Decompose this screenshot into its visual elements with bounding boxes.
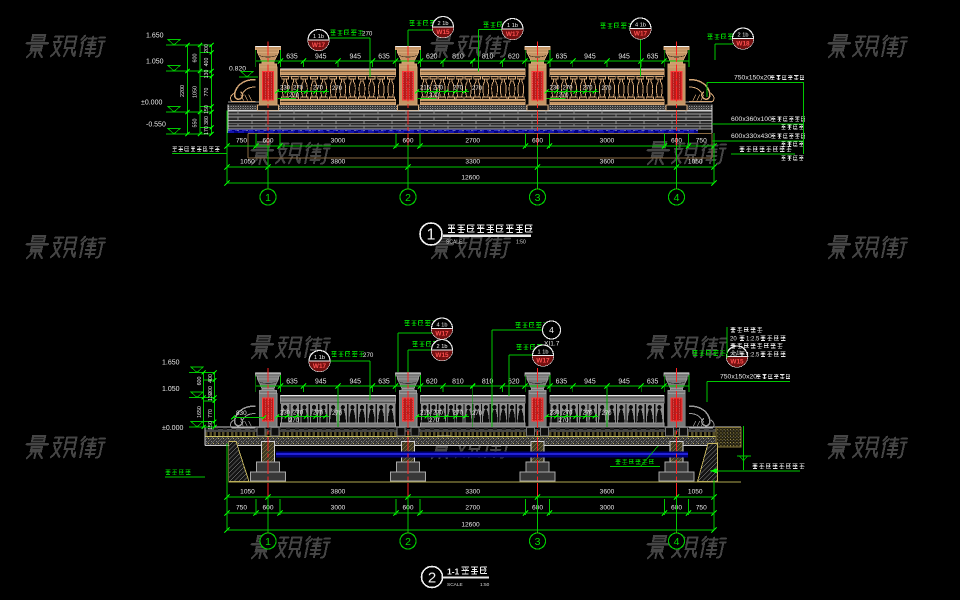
svg-text:270: 270 bbox=[429, 418, 440, 424]
svg-text:635: 635 bbox=[378, 379, 390, 386]
svg-text:810: 810 bbox=[452, 379, 464, 386]
svg-text:150: 150 bbox=[204, 105, 210, 114]
svg-text:2: 2 bbox=[428, 570, 436, 587]
svg-text:W18: W18 bbox=[736, 41, 750, 48]
svg-text:270: 270 bbox=[293, 86, 304, 92]
svg-text:1050: 1050 bbox=[688, 489, 703, 496]
svg-text:270: 270 bbox=[362, 31, 373, 38]
svg-text:3600: 3600 bbox=[600, 159, 615, 166]
svg-text:945: 945 bbox=[315, 54, 327, 61]
svg-text:600: 600 bbox=[402, 138, 413, 145]
svg-text:270: 270 bbox=[601, 411, 612, 417]
svg-text:270: 270 bbox=[313, 411, 324, 417]
svg-text:600x330x430: 600x330x430 bbox=[731, 133, 772, 140]
svg-text:270: 270 bbox=[332, 411, 343, 417]
svg-text:1 1b: 1 1b bbox=[314, 355, 325, 361]
svg-text:SCALE: SCALE bbox=[446, 240, 463, 246]
svg-text:600: 600 bbox=[262, 138, 273, 145]
svg-text:600: 600 bbox=[532, 138, 543, 145]
svg-text:620: 620 bbox=[426, 54, 438, 61]
svg-text:2 1b: 2 1b bbox=[438, 21, 449, 27]
svg-text:3800: 3800 bbox=[331, 489, 346, 496]
svg-text:2200: 2200 bbox=[180, 85, 186, 97]
svg-text:W17: W17 bbox=[312, 42, 326, 49]
svg-text:635: 635 bbox=[556, 379, 568, 386]
svg-text:945: 945 bbox=[349, 54, 361, 61]
svg-text:270: 270 bbox=[472, 86, 483, 92]
svg-text:270: 270 bbox=[582, 86, 593, 92]
svg-text:270: 270 bbox=[433, 86, 444, 92]
svg-text:1: 1 bbox=[265, 536, 271, 548]
svg-text:1:2.5: 1:2.5 bbox=[746, 337, 760, 343]
svg-text:3000: 3000 bbox=[331, 505, 346, 512]
svg-text:200: 200 bbox=[204, 44, 210, 53]
svg-text:230: 230 bbox=[280, 86, 291, 92]
svg-text:W17: W17 bbox=[506, 31, 520, 38]
svg-text:1.650: 1.650 bbox=[162, 360, 180, 367]
svg-text:270: 270 bbox=[472, 411, 483, 417]
svg-text:270: 270 bbox=[363, 352, 374, 359]
svg-text:1 1b: 1 1b bbox=[313, 34, 324, 40]
svg-text:2 1b: 2 1b bbox=[437, 344, 448, 350]
svg-text:4 1b: 4 1b bbox=[635, 22, 646, 28]
svg-text:20: 20 bbox=[730, 337, 737, 343]
svg-text:600: 600 bbox=[671, 138, 682, 145]
svg-text:635: 635 bbox=[647, 379, 659, 386]
svg-text:150: 150 bbox=[208, 421, 214, 430]
svg-text:620: 620 bbox=[426, 379, 438, 386]
svg-text:20: 20 bbox=[730, 353, 737, 359]
svg-text:12600: 12600 bbox=[461, 522, 480, 529]
svg-text:550: 550 bbox=[193, 119, 199, 128]
svg-text:750: 750 bbox=[236, 505, 247, 512]
svg-text:3000: 3000 bbox=[331, 138, 346, 145]
svg-text:945: 945 bbox=[618, 379, 630, 386]
svg-text:2700: 2700 bbox=[465, 505, 480, 512]
svg-text:1050: 1050 bbox=[193, 86, 199, 98]
svg-text:945: 945 bbox=[315, 379, 327, 386]
svg-text:270: 270 bbox=[562, 411, 573, 417]
svg-text:W15: W15 bbox=[436, 29, 450, 36]
svg-text:1050: 1050 bbox=[240, 159, 255, 166]
svg-text:W15: W15 bbox=[435, 352, 449, 359]
svg-text:620: 620 bbox=[508, 54, 520, 61]
svg-text:750: 750 bbox=[696, 138, 707, 145]
svg-text:230: 230 bbox=[549, 411, 560, 417]
svg-text:4: 4 bbox=[674, 192, 680, 204]
svg-text:635: 635 bbox=[286, 54, 298, 61]
svg-text:4 1b: 4 1b bbox=[437, 322, 448, 328]
svg-text:3: 3 bbox=[535, 192, 541, 204]
svg-text:770: 770 bbox=[204, 88, 210, 97]
svg-text:2: 2 bbox=[405, 192, 411, 204]
svg-text:750x150x20: 750x150x20 bbox=[720, 374, 757, 381]
svg-text:635: 635 bbox=[647, 54, 659, 61]
svg-text:170: 170 bbox=[204, 126, 210, 135]
svg-text:12600: 12600 bbox=[461, 175, 480, 182]
svg-text:270: 270 bbox=[332, 86, 343, 92]
svg-text:130: 130 bbox=[208, 392, 214, 401]
svg-text:810: 810 bbox=[452, 54, 464, 61]
svg-text:130: 130 bbox=[204, 70, 210, 79]
svg-text:600: 600 bbox=[193, 54, 199, 63]
svg-text:270: 270 bbox=[601, 86, 612, 92]
svg-text:1 1b: 1 1b bbox=[538, 349, 549, 355]
svg-text:W17: W17 bbox=[536, 358, 550, 365]
svg-text:270: 270 bbox=[562, 86, 573, 92]
svg-text:W17: W17 bbox=[634, 31, 648, 38]
svg-text:945: 945 bbox=[349, 379, 361, 386]
svg-text:4: 4 bbox=[674, 536, 680, 548]
svg-text:4: 4 bbox=[549, 325, 554, 335]
svg-text:1: 1 bbox=[265, 192, 271, 204]
svg-text:1050: 1050 bbox=[240, 489, 255, 496]
svg-text:±0.000: ±0.000 bbox=[162, 425, 183, 432]
svg-text:945: 945 bbox=[618, 54, 630, 61]
svg-text:2700: 2700 bbox=[465, 138, 480, 145]
svg-text:270: 270 bbox=[293, 411, 304, 417]
svg-text:215: 215 bbox=[420, 86, 431, 92]
svg-text:3: 3 bbox=[535, 536, 541, 548]
svg-text:3800: 3800 bbox=[331, 159, 346, 166]
svg-text:830: 830 bbox=[236, 410, 247, 417]
svg-text:1.050: 1.050 bbox=[146, 59, 164, 66]
svg-text:±0.000: ±0.000 bbox=[141, 100, 162, 107]
svg-text:3600: 3600 bbox=[600, 489, 615, 496]
svg-text:230: 230 bbox=[549, 86, 560, 92]
svg-text:1:50: 1:50 bbox=[480, 582, 490, 588]
svg-text:1.050: 1.050 bbox=[162, 386, 180, 393]
svg-text:2 1b: 2 1b bbox=[738, 32, 749, 38]
svg-text:810: 810 bbox=[482, 54, 494, 61]
svg-text:215: 215 bbox=[420, 411, 431, 417]
svg-text:400: 400 bbox=[204, 58, 210, 67]
svg-text:1.650: 1.650 bbox=[146, 33, 164, 40]
svg-text:770: 770 bbox=[208, 409, 214, 418]
svg-text:W17: W17 bbox=[435, 331, 449, 338]
svg-text:3000: 3000 bbox=[600, 505, 615, 512]
svg-text:620: 620 bbox=[508, 379, 520, 386]
svg-text:270: 270 bbox=[289, 418, 300, 424]
svg-text:270: 270 bbox=[558, 418, 569, 424]
svg-text:2: 2 bbox=[405, 536, 411, 548]
svg-text:1: 1 bbox=[427, 227, 436, 244]
svg-text:635: 635 bbox=[556, 54, 568, 61]
svg-text:600: 600 bbox=[197, 377, 203, 386]
svg-text:3300: 3300 bbox=[465, 489, 480, 496]
svg-text:750: 750 bbox=[696, 505, 707, 512]
svg-text:W15: W15 bbox=[730, 359, 744, 366]
svg-text:-0.550: -0.550 bbox=[146, 122, 166, 129]
svg-text:270: 270 bbox=[582, 411, 593, 417]
svg-text:750x150x20: 750x150x20 bbox=[734, 75, 771, 82]
svg-text:1 1b: 1 1b bbox=[507, 23, 518, 29]
svg-text:945: 945 bbox=[584, 54, 596, 61]
svg-text:270: 270 bbox=[313, 86, 324, 92]
svg-text:270: 270 bbox=[453, 86, 464, 92]
svg-text:635: 635 bbox=[378, 54, 390, 61]
svg-text:230: 230 bbox=[280, 411, 291, 417]
svg-text:270: 270 bbox=[433, 411, 444, 417]
svg-text:1650: 1650 bbox=[197, 406, 203, 418]
svg-text:1050: 1050 bbox=[688, 159, 703, 166]
svg-text:600x360x100: 600x360x100 bbox=[731, 116, 772, 123]
svg-text:1:2.5: 1:2.5 bbox=[746, 353, 760, 359]
svg-text:SCALE: SCALE bbox=[447, 582, 463, 588]
svg-text:1:50: 1:50 bbox=[516, 240, 526, 246]
svg-text:3000: 3000 bbox=[600, 138, 615, 145]
svg-text:3300: 3300 bbox=[465, 159, 480, 166]
svg-text:635: 635 bbox=[286, 379, 298, 386]
svg-text:400: 400 bbox=[208, 374, 214, 383]
svg-text:W17: W17 bbox=[313, 363, 327, 370]
svg-text:945: 945 bbox=[584, 379, 596, 386]
svg-text:1-1: 1-1 bbox=[447, 567, 460, 577]
svg-text:750: 750 bbox=[236, 138, 247, 145]
svg-text:380: 380 bbox=[204, 116, 210, 125]
svg-text:270: 270 bbox=[453, 411, 464, 417]
